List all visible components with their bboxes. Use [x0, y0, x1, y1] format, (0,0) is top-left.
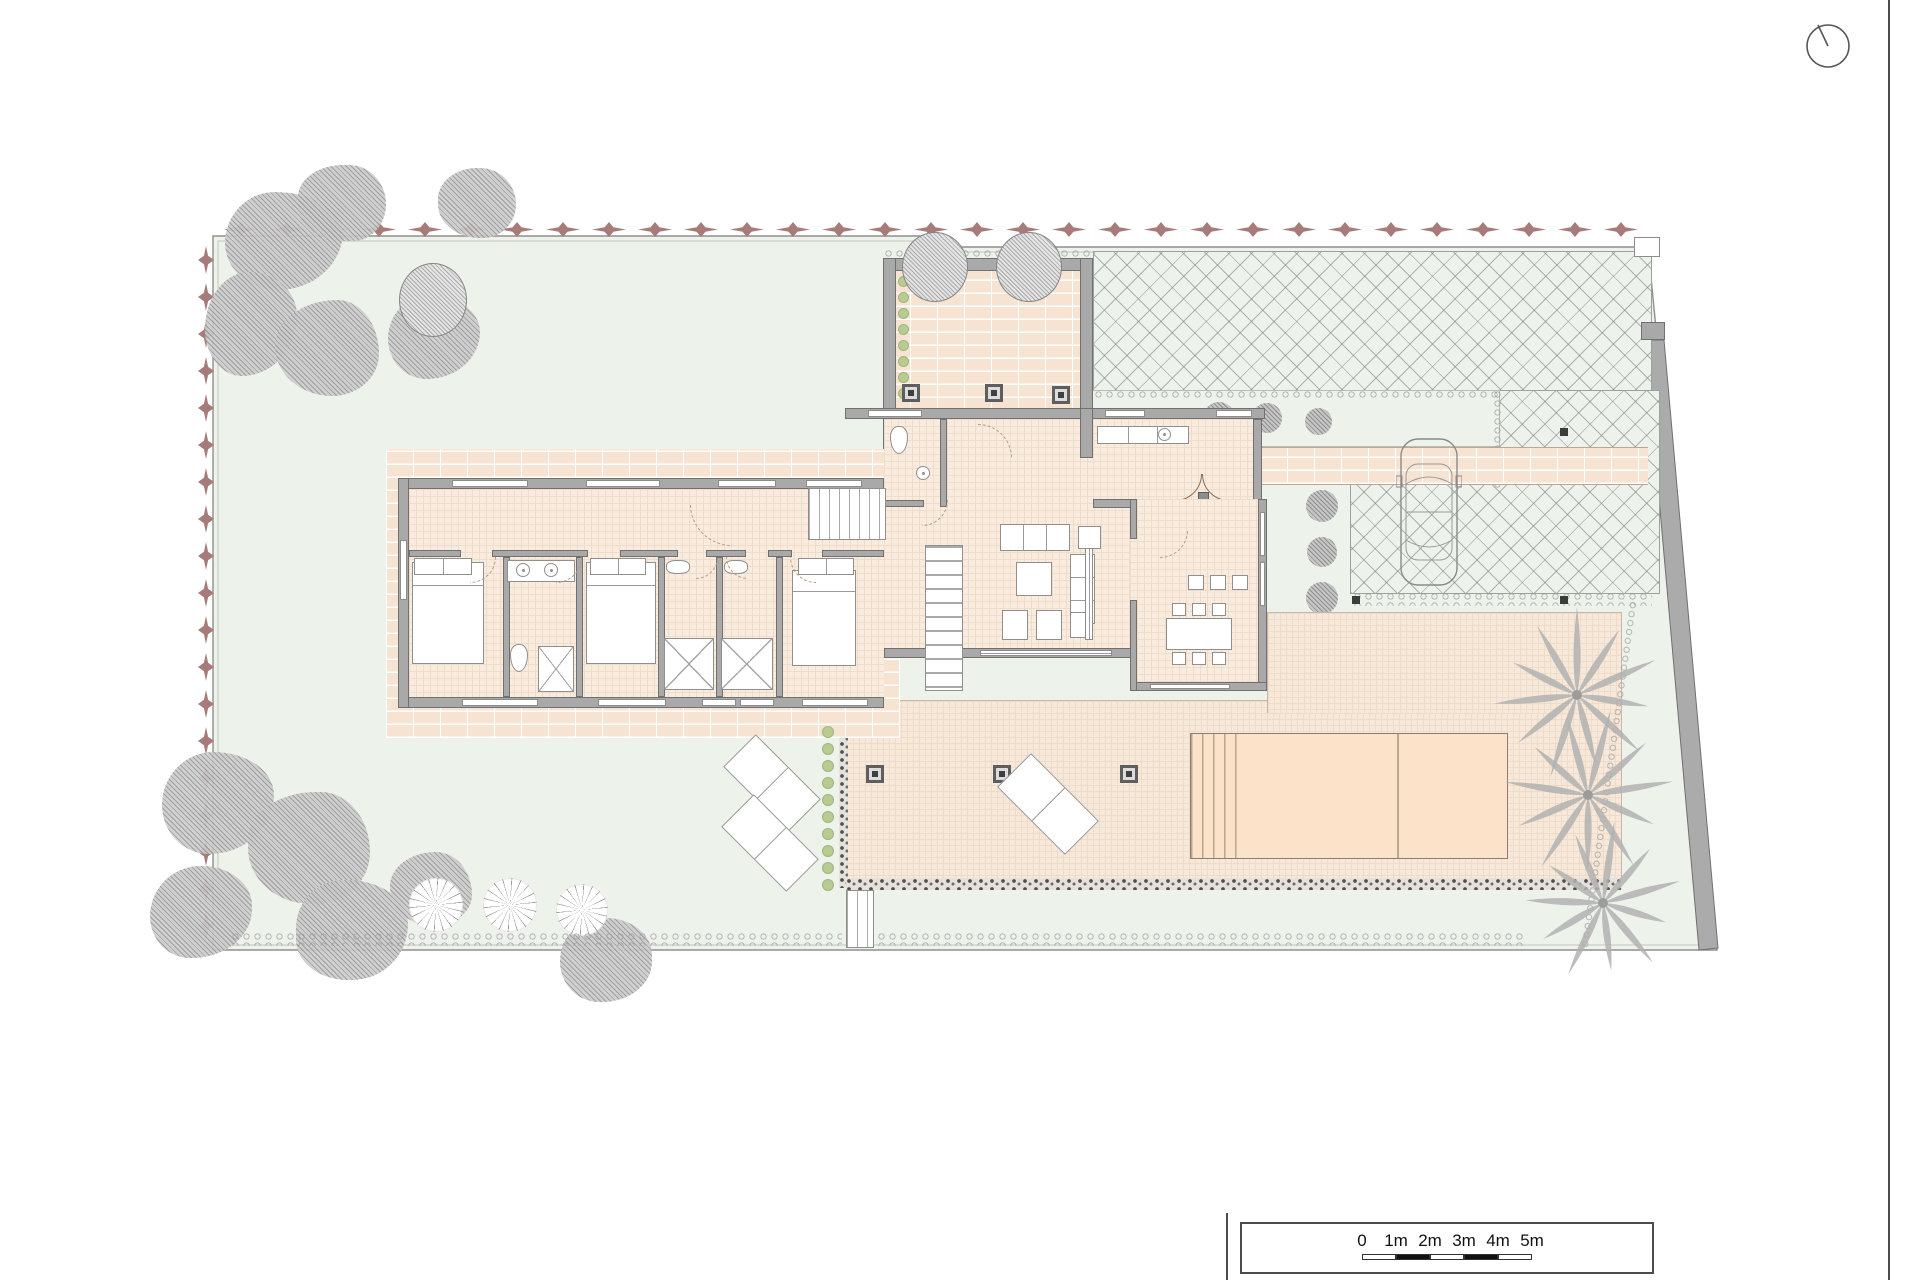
hedge-plant: [1420, 222, 1454, 237]
car: [1396, 436, 1462, 588]
hedge-plant: [198, 616, 214, 644]
shower: [538, 646, 574, 692]
hedge-plant: [868, 222, 902, 237]
armchair: [1002, 610, 1028, 640]
sink: [544, 563, 558, 577]
tree-hatched: [996, 232, 1062, 302]
kitchen-unit: [1232, 575, 1248, 590]
hedge-plant: [1374, 222, 1408, 237]
window: [1085, 548, 1093, 640]
parking-marker: [1352, 596, 1360, 604]
hedge-plant: [198, 542, 214, 570]
shrub-border-bottom: [876, 932, 1524, 946]
chair: [1212, 603, 1226, 616]
bed: [586, 562, 656, 664]
tree-canopy: [298, 165, 386, 241]
window: [740, 699, 774, 706]
north-indicator: [1800, 19, 1856, 75]
parking-marker: [1560, 428, 1568, 436]
courtyard-column: [985, 384, 1003, 402]
shrub-border-bottom: [230, 932, 842, 946]
hedge-plant: [198, 579, 214, 607]
window: [1216, 410, 1252, 417]
dining-chairs-top: [1172, 603, 1226, 616]
window: [802, 699, 868, 706]
kitchen-unit: [1188, 575, 1204, 590]
window: [806, 480, 862, 487]
chair: [1172, 652, 1186, 665]
scale-bar: 0 1m 2m 3m 4m 5m: [1240, 1222, 1654, 1274]
terrace-column: [866, 765, 884, 783]
scale-label: 0: [1357, 1231, 1366, 1251]
hedge-plant: [198, 690, 214, 718]
window: [400, 540, 407, 600]
terrace-column: [1120, 765, 1138, 783]
partition-wall: [1130, 499, 1137, 539]
corridor-wall: [706, 550, 746, 557]
hedge-plant: [1098, 222, 1132, 237]
hedge-plant: [1328, 222, 1362, 237]
sink-unit: [666, 560, 690, 574]
hedge-plant: [776, 222, 810, 237]
chair: [1192, 603, 1206, 616]
kitchen-unit: [1210, 575, 1226, 590]
hedge-plant: [198, 727, 214, 755]
shower: [721, 638, 773, 690]
hedge-plant: [198, 394, 214, 422]
armchair: [1036, 610, 1062, 640]
scale-ticks: [1362, 1254, 1532, 1260]
coffee-table: [1016, 562, 1052, 596]
corridor-wall: [492, 550, 588, 557]
corridor-wall: [822, 550, 884, 557]
scale-label: 4m: [1486, 1231, 1510, 1251]
courtyard-column: [1052, 386, 1070, 404]
stair-void: [925, 545, 963, 691]
hedge-plant: [1236, 222, 1270, 237]
gate: [1634, 237, 1660, 257]
partition-wall: [940, 419, 947, 507]
hedge-plant: [546, 222, 580, 237]
hedge-plant: [1052, 222, 1086, 237]
chair: [1172, 603, 1186, 616]
window: [1260, 512, 1265, 556]
hedge-plant: [1512, 222, 1546, 237]
hedge-plant: [730, 222, 764, 237]
partition-wall: [576, 557, 583, 697]
dining-chairs-bottom: [1172, 652, 1226, 665]
armchair: [1078, 526, 1101, 549]
hedge-plant: [822, 222, 856, 237]
hedge-plant: [198, 357, 214, 385]
scale-label: 1m: [1384, 1231, 1408, 1251]
hedge-plant: [960, 222, 994, 237]
corridor-wall: [620, 550, 678, 557]
hedge-plant: [198, 468, 214, 496]
scale-label: 3m: [1452, 1231, 1476, 1251]
sofa: [1000, 524, 1070, 551]
dining-table: [1166, 618, 1232, 650]
planting-strip: [822, 726, 834, 891]
window: [1260, 562, 1265, 606]
hedge-plant: [1190, 222, 1224, 237]
partition-wall: [884, 500, 924, 507]
scale-label: 2m: [1418, 1231, 1442, 1251]
wardrobe: [414, 558, 472, 575]
window: [586, 480, 660, 487]
driveway-paving: [1093, 251, 1652, 392]
hedge-plant: [638, 222, 672, 237]
sink: [516, 563, 530, 577]
courtyard-column: [902, 384, 920, 402]
floor-plan-sheet: 0 1m 2m 3m 4m 5m: [0, 0, 1920, 1280]
tree-hatched: [399, 263, 467, 337]
tree-hatched: [902, 232, 968, 302]
swimming-pool: [1190, 733, 1508, 859]
tree-twiggy: [483, 878, 537, 932]
exterior-wall: [1080, 408, 1093, 458]
sliding-door: [980, 650, 1112, 656]
pool-steps: [1191, 734, 1237, 858]
entry-strip-border: [1060, 390, 1500, 399]
wall-cap: [1641, 322, 1665, 340]
window: [462, 699, 538, 706]
pool-divider: [1397, 734, 1399, 858]
hedge-plant: [198, 431, 214, 459]
sheet-border-right: [1888, 0, 1890, 1280]
hedge-plant: [592, 222, 626, 237]
tree-twiggy: [409, 878, 463, 932]
window: [452, 480, 528, 487]
courtyard-planting: [898, 276, 909, 399]
chair: [1212, 652, 1226, 665]
terrace-stone-edge: [839, 733, 848, 888]
wardrobe: [590, 558, 646, 575]
bed: [792, 570, 856, 666]
sink: [916, 466, 930, 480]
tree-canopy: [438, 168, 516, 238]
hedge-plant: [1604, 222, 1638, 237]
tree-twiggy: [556, 884, 608, 936]
hedge-plant: [1558, 222, 1592, 237]
hedge-plant: [684, 222, 718, 237]
scale-label: 5m: [1520, 1231, 1544, 1251]
hedge-plant: [1466, 222, 1500, 237]
courtyard-wall: [1080, 258, 1093, 415]
chair: [1192, 652, 1206, 665]
palm-tree: [1508, 808, 1698, 998]
partition-wall: [776, 557, 783, 697]
hedge-plant: [198, 246, 214, 274]
title-block-divider: [1226, 1213, 1228, 1280]
round-tree: [1305, 408, 1332, 435]
hedge-plant: [198, 505, 214, 533]
staircase: [808, 488, 886, 540]
hedge-plant: [1282, 222, 1316, 237]
hedge-plant: [408, 222, 442, 237]
garden-steps: [846, 890, 874, 948]
window: [702, 699, 736, 706]
window: [1105, 410, 1145, 417]
hedge-plant: [1144, 222, 1178, 237]
window: [598, 699, 666, 706]
counter: [1097, 426, 1189, 444]
shower: [664, 638, 714, 690]
partition-wall: [1130, 600, 1137, 691]
window: [1150, 684, 1230, 689]
window: [868, 410, 922, 417]
corridor-wall: [768, 550, 792, 557]
sink: [1158, 428, 1171, 441]
corridor-wall: [409, 550, 461, 557]
hedge-plant: [198, 653, 214, 681]
window: [718, 480, 776, 487]
